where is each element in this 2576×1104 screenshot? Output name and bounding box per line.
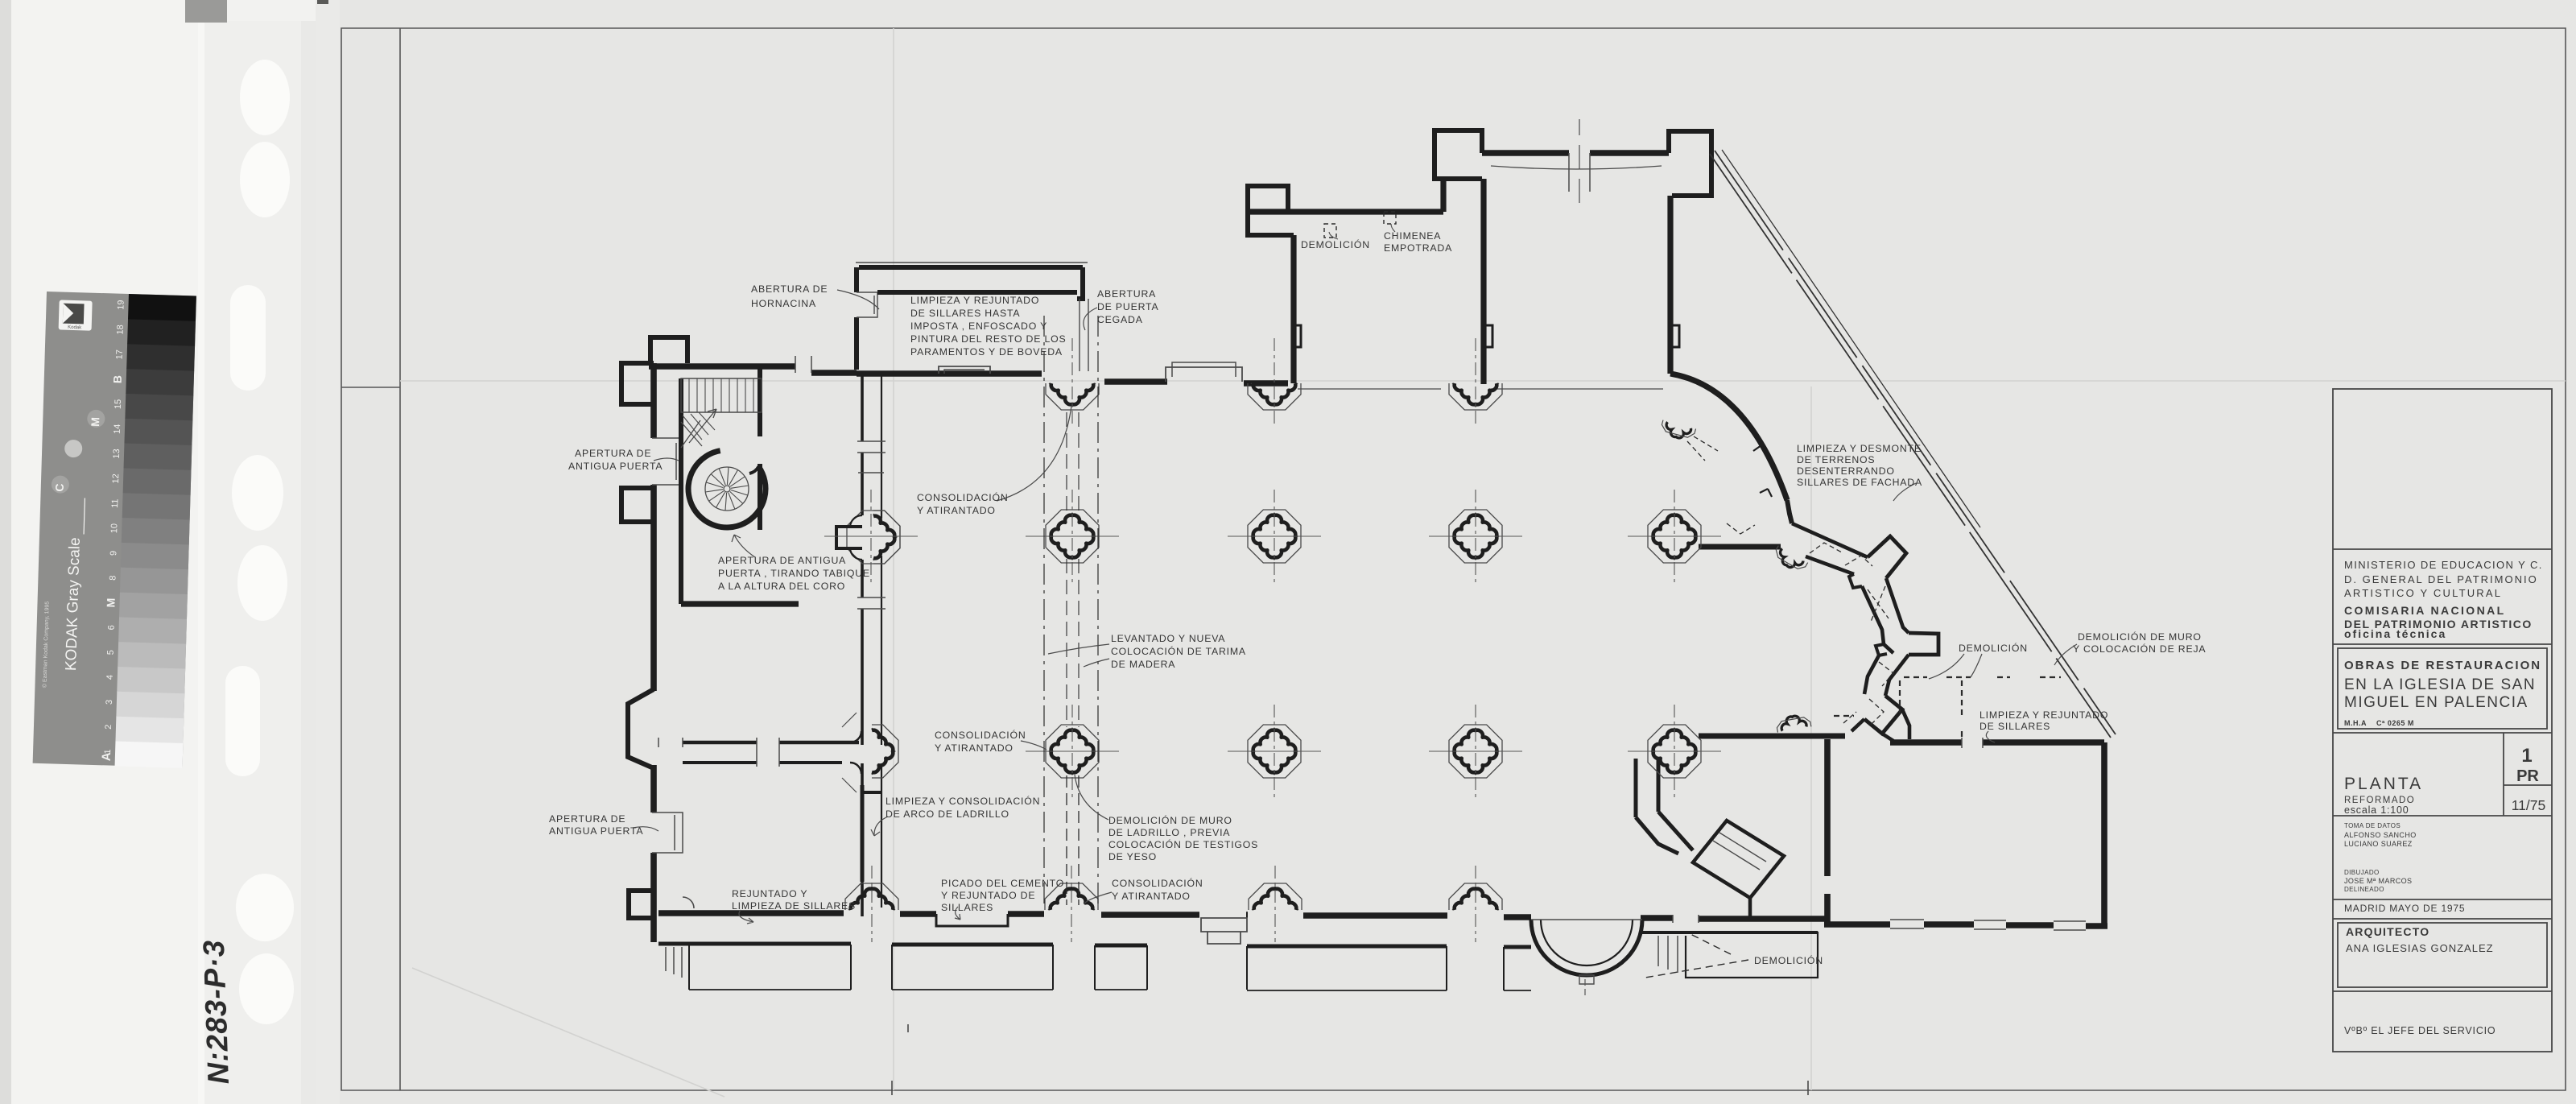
svg-text:SILLARES DE FACHADA: SILLARES DE FACHADA: [1797, 477, 1922, 488]
svg-text:ANTIGUA PUERTA: ANTIGUA PUERTA: [568, 461, 663, 472]
svg-text:Y ATIRANTADO: Y ATIRANTADO: [935, 742, 1013, 754]
svg-text:VºBº EL JEFE DEL SERVICIO: VºBº EL JEFE DEL SERVICIO: [2344, 1025, 2495, 1036]
svg-text:CONSOLIDACIÓN: CONSOLIDACIÓN: [935, 729, 1026, 741]
svg-text:DEMOLICIÓN DE MURO: DEMOLICIÓN DE MURO: [1108, 814, 1232, 826]
svg-text:LIMPIEZA DE SILLARES: LIMPIEZA DE SILLARES: [732, 900, 856, 912]
svg-text:Y ATIRANTADO: Y ATIRANTADO: [917, 505, 996, 516]
svg-text:LUCIANO SUAREZ: LUCIANO SUAREZ: [2344, 840, 2413, 848]
svg-text:PLANTA: PLANTA: [2344, 775, 2423, 793]
svg-text:10: 10: [109, 523, 119, 534]
svg-text:COMISARIA NACIONAL: COMISARIA NACIONAL: [2344, 604, 2506, 617]
svg-text:D. GENERAL DEL PATRIMONIO: D. GENERAL DEL PATRIMONIO: [2344, 573, 2538, 585]
svg-text:ANA IGLESIAS GONZALEZ: ANA IGLESIAS GONZALEZ: [2346, 942, 2494, 954]
svg-text:DEMOLICIÓN: DEMOLICIÓN: [1754, 954, 1823, 966]
svg-text:4: 4: [105, 675, 115, 680]
svg-text:DE PUERTA: DE PUERTA: [1097, 301, 1158, 312]
svg-text:11/75: 11/75: [2512, 797, 2546, 813]
svg-text:9: 9: [109, 551, 118, 556]
svg-text:15: 15: [114, 399, 123, 410]
svg-text:DEMOLICIÓN: DEMOLICIÓN: [1301, 238, 1370, 250]
svg-text:ALFONSO SANCHO: ALFONSO SANCHO: [2344, 831, 2417, 839]
svg-text:DE ARCO DE LADRILLO: DE ARCO DE LADRILLO: [885, 808, 1009, 820]
svg-text:DE MADERA: DE MADERA: [1111, 659, 1175, 670]
svg-text:PINTURA DEL RESTO DE LOS: PINTURA DEL RESTO DE LOS: [910, 333, 1066, 345]
svg-text:A LA ALTURA DEL CORO: A LA ALTURA DEL CORO: [718, 581, 845, 592]
svg-text:DELINEADO: DELINEADO: [2344, 886, 2384, 893]
svg-text:Y COLOCACIÓN DE REJA: Y COLOCACIÓN DE REJA: [2073, 643, 2206, 655]
svg-text:APERTURA DE: APERTURA DE: [575, 448, 651, 459]
svg-text:HORNACINA: HORNACINA: [751, 298, 816, 309]
svg-text:DESENTERRANDO: DESENTERRANDO: [1797, 465, 1895, 477]
svg-text:EMPOTRADA: EMPOTRADA: [1384, 242, 1452, 254]
svg-text:C: C: [53, 483, 66, 492]
svg-text:SILLARES: SILLARES: [941, 902, 993, 913]
svg-text:CONSOLIDACIÓN: CONSOLIDACIÓN: [1112, 877, 1203, 889]
svg-text:APERTURA DE: APERTURA DE: [549, 813, 625, 825]
svg-text:18: 18: [115, 325, 125, 335]
svg-text:REJUNTADO Y: REJUNTADO Y: [732, 888, 807, 899]
svg-text:DE SILLARES HASTA: DE SILLARES HASTA: [910, 308, 1020, 319]
svg-text:3: 3: [105, 700, 114, 705]
svg-text:14: 14: [113, 424, 122, 434]
svg-text:N:283-P·3: N:283-P·3: [197, 939, 235, 1085]
svg-text:DEMOLICIÓN DE MURO: DEMOLICIÓN DE MURO: [2078, 631, 2202, 643]
svg-text:MADRID MAYO DE 1975: MADRID MAYO DE 1975: [2344, 903, 2465, 914]
svg-text:13: 13: [112, 449, 122, 459]
svg-text:LIMPIEZA Y REJUNTADO: LIMPIEZA Y REJUNTADO: [910, 295, 1039, 306]
svg-text:M: M: [104, 597, 117, 607]
svg-text:EN LA IGLESIA DE SAN: EN LA IGLESIA DE SAN: [2344, 676, 2536, 693]
svg-text:5: 5: [106, 650, 116, 655]
svg-text:DEMOLICIÓN: DEMOLICIÓN: [1959, 642, 2028, 654]
svg-text:DE LADRILLO , PREVIA: DE LADRILLO , PREVIA: [1108, 827, 1230, 838]
svg-text:JOSE Mª MARCOS: JOSE Mª MARCOS: [2344, 877, 2412, 885]
svg-text:OBRAS DE RESTAURACION: OBRAS DE RESTAURACION: [2344, 659, 2541, 672]
svg-text:ARTISTICO Y CULTURAL: ARTISTICO Y CULTURAL: [2344, 587, 2502, 599]
svg-text:12: 12: [111, 473, 121, 484]
svg-text:APERTURA DE ANTIGUA: APERTURA DE ANTIGUA: [718, 555, 846, 566]
svg-text:ABERTURA: ABERTURA: [1097, 288, 1156, 300]
svg-text:LEVANTADO Y NUEVA: LEVANTADO Y NUEVA: [1111, 633, 1225, 644]
svg-text:oficina técnica: oficina técnica: [2344, 627, 2446, 640]
svg-text:IMPOSTA , ENFOSCADO Y: IMPOSTA , ENFOSCADO Y: [910, 320, 1047, 332]
svg-text:COLOCACIÓN DE TARIMA: COLOCACIÓN DE TARIMA: [1111, 645, 1246, 657]
svg-text:DE SILLARES: DE SILLARES: [1979, 721, 2050, 732]
svg-text:17: 17: [115, 349, 125, 360]
svg-text:M.H.A Cª 0265 M: M.H.A Cª 0265 M: [2344, 719, 2414, 727]
svg-text:M: M: [89, 417, 101, 427]
svg-text:19: 19: [116, 300, 126, 310]
svg-text:11: 11: [110, 498, 120, 508]
svg-text:ARQUITECTO: ARQUITECTO: [2346, 925, 2429, 938]
svg-text:Y ATIRANTADO: Y ATIRANTADO: [1112, 891, 1191, 902]
svg-text:MIGUEL EN PALENCIA: MIGUEL EN PALENCIA: [2344, 694, 2529, 711]
svg-text:escala 1:100: escala 1:100: [2344, 804, 2409, 816]
svg-text:1: 1: [103, 749, 113, 754]
svg-text:COLOCACIÓN DE TESTIGOS: COLOCACIÓN DE TESTIGOS: [1108, 838, 1258, 850]
svg-text:PR: PR: [2516, 767, 2539, 785]
svg-text:1: 1: [2521, 745, 2532, 767]
svg-text:8: 8: [108, 575, 118, 580]
svg-text:ANTIGUA PUERTA: ANTIGUA PUERTA: [549, 825, 643, 837]
svg-text:DE YESO: DE YESO: [1108, 851, 1157, 862]
svg-text:DE TERRENOS: DE TERRENOS: [1797, 454, 1875, 465]
svg-text:B: B: [111, 375, 124, 384]
svg-text:6: 6: [107, 625, 117, 630]
svg-text:MINISTERIO DE EDUCACION Y C.: MINISTERIO DE EDUCACION Y C.: [2344, 559, 2543, 571]
svg-text:2: 2: [104, 724, 114, 729]
svg-text:LIMPIEZA Y DESMONTE: LIMPIEZA Y DESMONTE: [1797, 443, 1922, 454]
svg-text:DIBUJADO: DIBUJADO: [2344, 869, 2380, 876]
svg-text:LIMPIEZA Y REJUNTADO: LIMPIEZA Y REJUNTADO: [1979, 709, 2108, 721]
svg-text:CEGADA: CEGADA: [1097, 314, 1143, 325]
svg-text:CHIMENEA: CHIMENEA: [1384, 230, 1441, 242]
svg-text:Kodak: Kodak: [68, 325, 82, 331]
svg-text:PUERTA , TIRANDO TABIQUE: PUERTA , TIRANDO TABIQUE: [718, 568, 870, 579]
svg-text:LIMPIEZA Y CONSOLIDACIÓN: LIMPIEZA Y CONSOLIDACIÓN: [885, 795, 1040, 807]
svg-text:PICADO DEL CEMENTO: PICADO DEL CEMENTO: [941, 878, 1064, 889]
svg-text:CONSOLIDACIÓN: CONSOLIDACIÓN: [917, 491, 1009, 503]
svg-text:ABERTURA DE: ABERTURA DE: [751, 283, 828, 295]
svg-text:Y REJUNTADO DE: Y REJUNTADO DE: [941, 890, 1035, 901]
svg-text:TOMA DE DATOS: TOMA DE DATOS: [2344, 822, 2401, 829]
svg-text:PARAMENTOS Y DE BOVEDA: PARAMENTOS Y DE BOVEDA: [910, 346, 1063, 358]
